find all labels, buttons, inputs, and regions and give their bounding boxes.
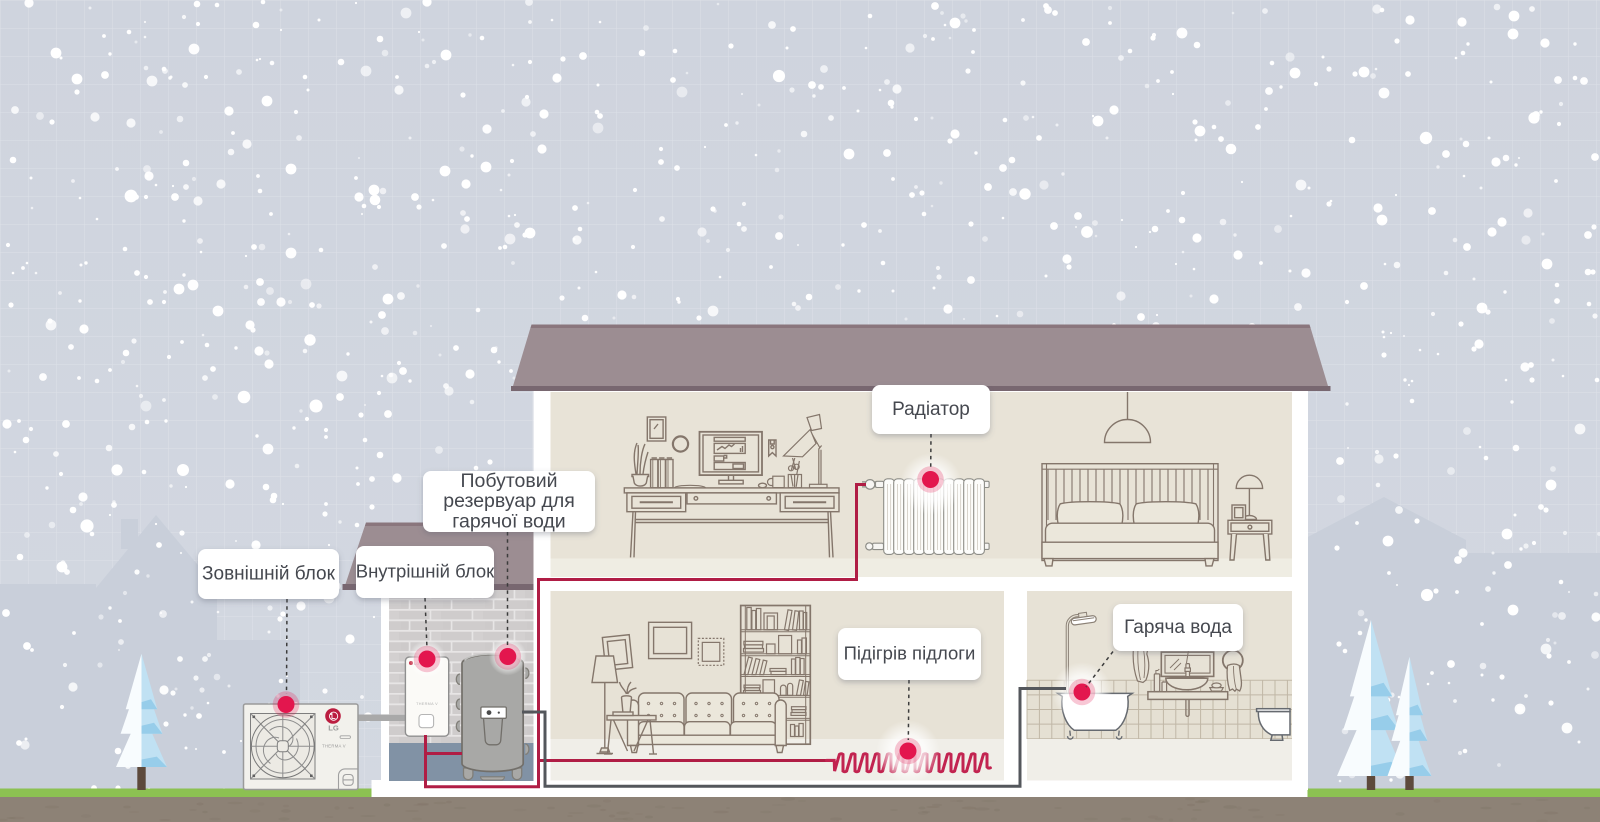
svg-text:Внутрішній блок: Внутрішній блок	[356, 561, 495, 582]
svg-text:Підігрів підлоги: Підігрів підлоги	[844, 643, 976, 664]
svg-text:Гаряча вода: Гаряча вода	[1124, 617, 1232, 638]
svg-text:Радіатор: Радіатор	[892, 399, 970, 420]
svg-text:Зовнішній блок: Зовнішній блок	[202, 564, 336, 585]
svg-text:THERMA V: THERMA V	[416, 702, 438, 706]
svg-text:LG: LG	[328, 724, 339, 733]
svg-text:гарячої води: гарячої води	[452, 511, 565, 533]
svg-text:THERMA V: THERMA V	[322, 744, 346, 749]
svg-text:резервуар для: резервуар для	[443, 490, 575, 512]
svg-text:Побутовий: Побутовий	[460, 470, 557, 492]
